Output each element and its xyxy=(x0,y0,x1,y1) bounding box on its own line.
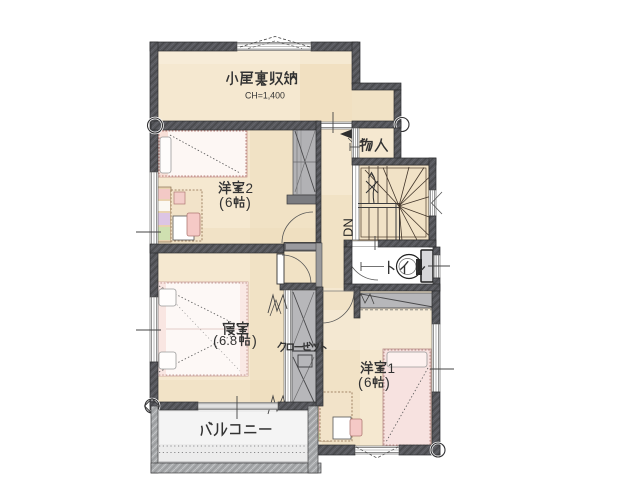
svg-text:(: ( xyxy=(219,196,224,212)
svg-text:CH=1,400: CH=1,400 xyxy=(245,91,285,101)
svg-text:): ) xyxy=(385,376,390,392)
svg-text:6.8: 6.8 xyxy=(219,333,237,348)
svg-text:): ) xyxy=(246,196,251,212)
svg-text:6: 6 xyxy=(364,375,372,390)
svg-text:2: 2 xyxy=(246,181,254,196)
svg-text:6: 6 xyxy=(225,195,233,210)
svg-text:): ) xyxy=(252,334,257,350)
svg-text:(: ( xyxy=(358,376,363,392)
svg-text:1: 1 xyxy=(388,361,396,376)
svg-text:(: ( xyxy=(213,334,218,350)
svg-text:DN: DN xyxy=(341,218,356,237)
